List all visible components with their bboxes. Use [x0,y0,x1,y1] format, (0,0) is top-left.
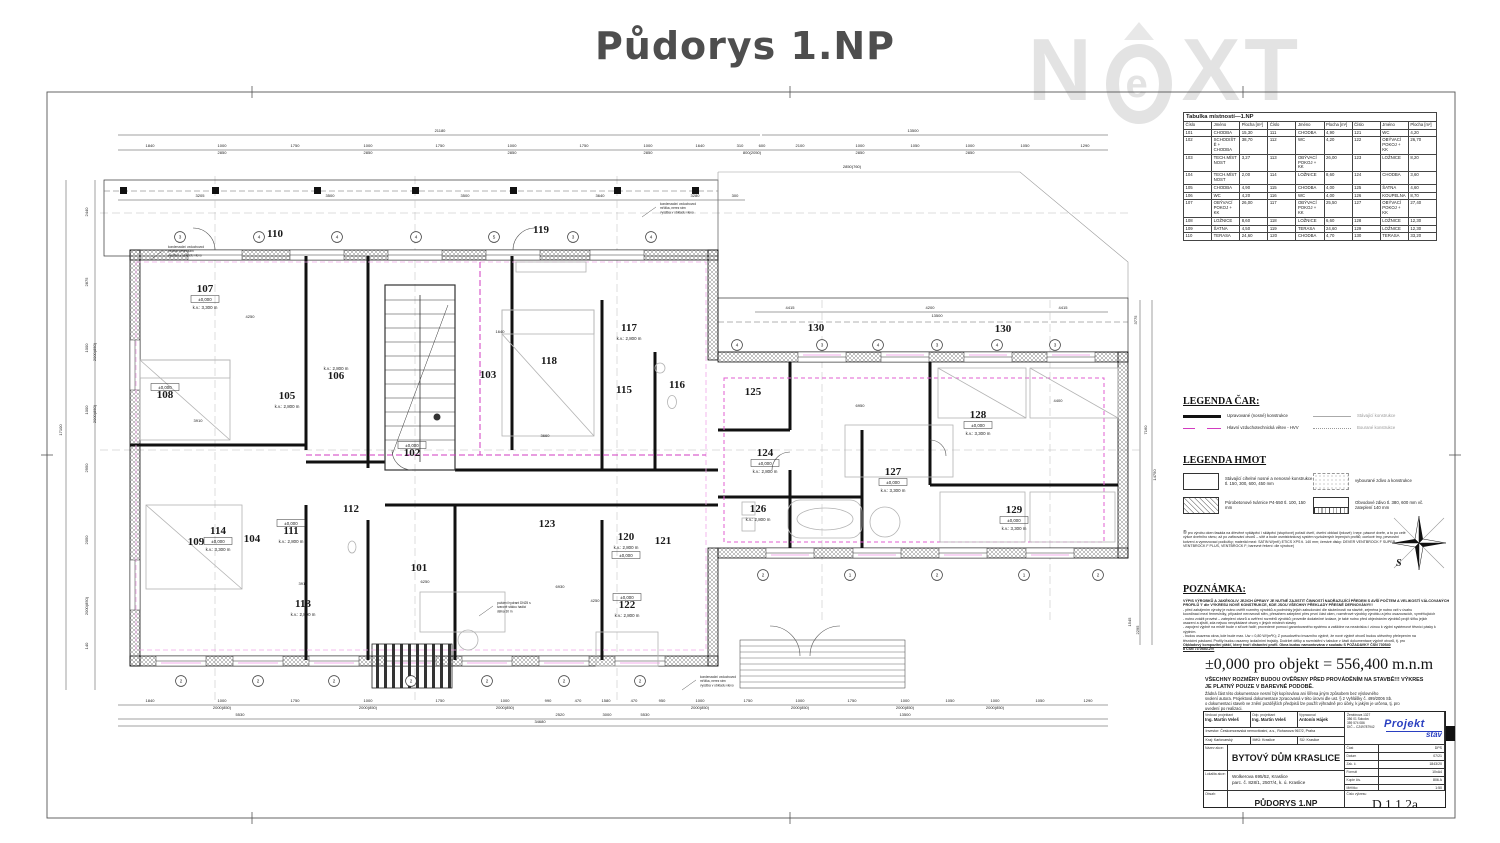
svg-text:4250: 4250 [246,314,256,319]
room-name: TERASA [1212,233,1240,241]
legend-mass-label: vybourané zdivo a konstrukce [1355,479,1412,484]
svg-text:vyústka v obkladu vlevo: vyústka v obkladu vlevo [700,683,734,687]
room-number: 103 [1184,154,1212,171]
svg-text:123: 123 [539,518,556,530]
svg-text:1290: 1290 [1081,143,1091,148]
wing-terrace [718,172,1128,352]
warning-line: JE PLATNÝ POUZE V BAREVNÉ PODOBĚ. [1205,684,1455,691]
col-header: Plocha [m²] [1240,121,1268,129]
room-area: 25,50 [1324,200,1352,217]
legend-mass-item: Pórobetonové tvárnice P4-550 tl. 100, 15… [1183,497,1313,514]
grid-bubble: 4 [992,340,1003,351]
room-area: 4,60 [1408,184,1436,192]
svg-text:vyústka v obkladu vlevo: vyústka v obkladu vlevo [660,210,694,214]
legend-mass-label: Stávající cihelné nosné a nenosné konstr… [1225,477,1313,487]
room-name: OBÝVACÍ POKOJ + KK [1296,154,1324,171]
room-area: 27,40 [1408,200,1436,217]
poznamka-line: - zapojení výplně na místě bude v síťové… [1183,625,1453,629]
company-logo: Projekt stav [1384,718,1442,739]
meta-value: 1843/20 [1379,761,1444,768]
room-label-130: 130 [808,322,825,334]
room-number: 108 [1184,217,1212,225]
dots-line-sample [1313,428,1351,429]
table-row: 109ŠATNA4,50119TERASA24,60129LOŽNICE12,3… [1184,225,1437,233]
svg-text:4: 4 [877,343,880,348]
hvv-lines [136,262,1104,650]
svg-text:470: 470 [575,698,582,703]
room-area: 8,20 [1408,154,1436,171]
room-name: CHODBA [1380,172,1408,185]
room-name: CHODBA [1212,184,1240,192]
room-number: 116 [1268,192,1296,200]
table-row: 108LOŽNICE8,60118LOŽNICE6,60128LOŽNICE12… [1184,217,1437,225]
svg-text:±0,000: ±0,000 [198,297,212,302]
project-label: Název akce: [1204,745,1228,771]
svg-text:4: 4 [736,343,739,348]
room-name: OBÝVACÍ POKOJ + KK [1380,137,1408,154]
room-label-123: 123 [539,518,556,530]
grid-bubble: 2 [932,570,943,581]
legend-line-label: Bourané konstrukce [1357,426,1395,431]
svg-text:111: 111 [283,525,298,537]
project-name: BYTOVÝ DŮM KRASLICE [1228,745,1345,771]
room-label-111: 111±0,000k.v.: 2,800 m [277,520,305,545]
svg-text:3500: 3500 [461,193,471,198]
meta-row: Zak. č.1843/20 [1345,761,1444,769]
room-number: 117 [1268,200,1296,217]
room-area: 4,90 [1240,184,1268,192]
svg-text:1000: 1000 [644,143,654,148]
svg-text:117: 117 [621,322,637,334]
svg-text:1640: 1640 [696,143,706,148]
room-name: CHODBA [1212,129,1240,137]
svg-text:1000: 1000 [856,143,866,148]
svg-text:±0,000: ±0,000 [284,521,298,526]
svg-text:2: 2 [486,679,489,684]
svg-text:4: 4 [258,235,261,240]
svg-text:101: 101 [411,562,428,574]
table-row: 104TECH.MÍSTNOST2,00114LOŽNICE8,60124CHO… [1184,172,1437,185]
meta-row: Kopie čís.806 A [1345,777,1444,785]
poznamka-line: koordinaci mezi řemeslníky, případné ner… [1183,612,1453,616]
svg-text:2000(850): 2000(850) [359,705,378,710]
svg-text:±0,000: ±0,000 [1007,518,1021,523]
room-area: 8,60 [1240,217,1268,225]
svg-text:14750: 14750 [1152,469,1157,481]
svg-text:±0,000: ±0,000 [158,385,172,390]
col-header: Jméno [1212,121,1240,129]
room-area: 4,70 [1324,233,1352,241]
svg-text:116: 116 [669,379,685,391]
svg-text:4: 4 [336,235,339,240]
grid-bubble: 3 [932,340,943,351]
svg-text:112: 112 [343,503,359,515]
room-area: 4,00 [1324,192,1352,200]
grid-bubble: 4 [411,232,422,243]
room-label-116: 116 [669,379,685,391]
svg-text:k.v.: 2,800 m: k.v.: 2,800 m [324,366,349,371]
person-name: Ing. Martin Veleš [1251,717,1297,723]
svg-text:4: 4 [415,235,418,240]
drawing-no-cell: Číslo výkresu D.1.1.2a [1345,791,1445,808]
grid-bubble: 1 [845,570,856,581]
svg-text:vyústka v obkladu vlevo: vyústka v obkladu vlevo [168,253,202,257]
room-label-118: 118 [541,355,557,367]
room-number: 107 [1184,200,1212,217]
svg-text:990: 990 [545,698,552,703]
room-number: 120 [1268,233,1296,241]
room-area: 4,20 [1240,192,1268,200]
svg-text:1000: 1000 [696,698,706,703]
svg-text:2875: 2875 [84,277,89,287]
grid-bubble: 4 [332,232,343,243]
svg-text:2: 2 [563,679,566,684]
room-name: LOŽNICE [1380,225,1408,233]
svg-text:1840: 1840 [146,698,156,703]
meta-value: 806 A [1379,777,1444,784]
svg-text:2950: 2950 [84,463,89,473]
meta-label: Kopie čís. [1345,777,1379,784]
grid-bubble: 3 [817,340,828,351]
room-labels: 107±0,000k.v.: 3,300 m108±0,000105k.v.: … [151,224,1028,618]
room-number: 122 [1352,137,1380,154]
company-address-line: DIČ – CZ49787942 [1347,726,1374,730]
poznamka-intro: VÝPIS VÝROBKŮ A JAKÉKOLIV JEJICH ÚPRAVY … [1183,599,1453,608]
svg-text:k.v.: 2,800 m: k.v.: 2,800 m [617,336,642,341]
room-area: 3,60 [1408,172,1436,185]
room-area: 26,70 [1408,137,1436,154]
room-name: TERASA [1296,225,1324,233]
svg-text:3775: 3775 [1133,315,1138,325]
svg-text:3: 3 [1054,343,1057,348]
room-label-112: 112 [343,503,359,515]
room-label-128: 128±0,000k.v.: 3,300 m [964,409,992,436]
grid-bubble: 2 [635,676,646,687]
disclaimer-block: Žádná část této dokumentace nesmí být ko… [1205,691,1449,711]
svg-text:k.v.: 3,300 m: k.v.: 3,300 m [966,431,991,436]
svg-text:k.v.: 3,300 m: k.v.: 3,300 m [881,488,906,493]
svg-text:2000(850): 2000(850) [213,705,232,710]
legend-masses-title: LEGENDA HMOT [1183,455,1439,466]
room-name: ŠATNA [1380,184,1408,192]
room-name: WC [1296,137,1324,154]
svg-text:2000(850): 2000(850) [496,705,515,710]
location-cell: Wolkerova 695/52, Kraslice parc. č. 828/… [1228,771,1345,791]
svg-text:600: 600 [759,143,766,148]
svg-text:2295: 2295 [1135,625,1140,635]
svg-text:1000: 1000 [84,343,89,353]
room-area: 26,00 [1240,200,1268,217]
room-number: 114 [1268,172,1296,185]
room-name: KOUPELNA [1380,192,1408,200]
svg-text:délka 30 m: délka 30 m [497,609,513,613]
grid-bubble: 3 [1050,340,1061,351]
col-header: Číslo [1268,121,1296,129]
room-name: TERASA [1380,233,1408,241]
svg-text:1580: 1580 [602,698,612,703]
logo-bottom-text: stav [1384,730,1442,739]
svg-text:4415: 4415 [786,305,796,310]
svg-text:1000: 1000 [218,698,228,703]
grid-bubble: 2 [482,676,493,687]
room-label-106: 106k.v.: 2,800 m [324,366,349,382]
legend-line-label: Upravované (nosné) konstrukce [1227,414,1288,419]
svg-text:1000: 1000 [901,698,911,703]
col-header: Jméno [1296,121,1324,129]
room-table: Tabulka místností—1.NPČísloJménoPlocha [… [1183,112,1437,241]
brick-band [1314,507,1349,514]
svg-text:125: 125 [745,386,762,398]
warning-block: VŠECHNY ROZMĚRY BUDOU OVĚŘENY PŘED PROVÁ… [1205,677,1455,690]
room-name: WC [1380,129,1408,137]
room-name: LOŽNICE [1380,217,1408,225]
svg-text:3640: 3640 [596,193,606,198]
title-block: Investor: Českomoravská nemovitostní, a.… [1203,711,1446,808]
svg-text:2850(760): 2850(760) [843,164,862,169]
svg-text:1000: 1000 [508,143,518,148]
legend-lines: LEGENDA ČAR: Upravované (nosné) konstruk… [1183,396,1439,431]
room-number: 126 [1352,192,1380,200]
room-number: 104 [1184,172,1212,185]
svg-text:6950: 6950 [856,403,866,408]
room-label-115: 115 [616,384,632,396]
room-name: LOŽNICE [1212,217,1240,225]
svg-text:122: 122 [619,599,636,611]
room-area: 6,60 [1324,217,1352,225]
svg-text:k.v.: 2,800 m: k.v.: 2,800 m [614,545,639,550]
legend-mass-item: Stávající cihelné nosné a nenosné konstr… [1183,473,1313,490]
staircase [385,285,455,470]
grid-bubble: 4 [873,340,884,351]
drawing-sheet: Půdorys 1.NP N e X T [0,0,1500,843]
room-number: 129 [1352,225,1380,233]
room-label-129: 129±0,000k.v.: 3,300 m [1000,504,1028,531]
room-name: TECH.MÍSTNOST [1212,154,1240,171]
svg-text:1290: 1290 [1084,698,1094,703]
grid-bubble: 1 [1019,570,1030,581]
svg-text:±0,000: ±0,000 [405,443,419,448]
svg-text:k.v.: 3,300 m: k.v.: 3,300 m [193,305,218,310]
svg-text:1000: 1000 [991,698,1001,703]
svg-text:k.v.: 2,800 m: k.v.: 2,800 m [279,539,304,544]
legend-masses: LEGENDA HMOT Stávající cihelné nosné a n… [1183,455,1439,514]
svg-text:3: 3 [179,235,182,240]
room-number: 127 [1352,200,1380,217]
svg-text:1000: 1000 [364,143,374,148]
svg-text:13500: 13500 [899,712,911,717]
svg-text:1050: 1050 [946,698,956,703]
svg-text:2100: 2100 [796,143,806,148]
diag-swatch [1183,497,1219,514]
room-number: 102 [1184,137,1212,154]
svg-text:1000: 1000 [84,405,89,415]
svg-text:5530: 5530 [641,712,651,717]
col-header: Plocha [m²] [1324,121,1352,129]
svg-text:k.v.: 2,800 m: k.v.: 2,800 m [291,612,316,617]
room-area: 8,70 [1408,192,1436,200]
legend-mass-item: Obvodové zdivo tl. 380, 600 mm vč. zatep… [1313,497,1439,514]
svg-text:2: 2 [333,679,336,684]
svg-text:470: 470 [631,698,638,703]
svg-text:1750: 1750 [291,698,301,703]
room-area: 4,50 [1240,225,1268,233]
region-cell: SÚ: Kraslice [1298,737,1345,745]
legend-line-label: Stávající konstrukce [1357,414,1395,419]
room-number: 101 [1184,129,1212,137]
room-number: 119 [1268,225,1296,233]
svg-text:±0,000: ±0,000 [971,423,985,428]
gray-line-sample [1313,416,1351,417]
grid-bubble: 3 [175,232,186,243]
svg-text:2850: 2850 [856,150,866,155]
svg-text:3205: 3205 [196,193,206,198]
room-area: 24,60 [1240,233,1268,241]
reg-note: ® pro výrobu oken fasáda na dřevěné vykl… [1183,531,1409,548]
room-number: 118 [1268,217,1296,225]
svg-text:1050: 1050 [1036,698,1046,703]
svg-text:110: 110 [267,228,283,240]
legend-line-item: Hlavní vzduchotechnická větev - HVV [1183,426,1313,431]
svg-text:140: 140 [84,642,89,649]
svg-text:800(2050): 800(2050) [743,150,762,155]
room-label-120: 120k.v.: 2,800 m±0,000 [612,531,640,559]
room-area: 3,27 [1240,154,1268,171]
col-header: Jméno [1380,121,1408,129]
svg-text:114: 114 [210,525,226,537]
svg-text:1750: 1750 [744,698,754,703]
svg-text:7160: 7160 [1143,425,1148,435]
room-name: CHODBA [1296,184,1324,192]
svg-text:2850: 2850 [644,150,654,155]
room-table-wrap: Tabulka místností—1.NPČísloJménoPlocha [… [1183,112,1437,241]
room-label-104: 104 [244,533,261,545]
svg-text:2: 2 [936,573,939,578]
svg-text:3280: 3280 [691,193,701,198]
svg-text:124: 124 [757,447,774,459]
room-name: CHODBA [1296,129,1324,137]
room-number: 105 [1184,184,1212,192]
svg-text:109: 109 [188,536,205,548]
svg-text:128: 128 [970,409,987,421]
svg-text:k.v.: 2,800 m: k.v.: 2,800 m [615,613,640,618]
leader-annotation: kondenzační vzduchovodmřížka, nerez rámv… [642,202,696,217]
svg-text:4400: 4400 [1054,398,1064,403]
legend-line-item: Bourané konstrukce [1313,426,1433,431]
meta-label: Datum [1345,753,1379,760]
svg-text:1050: 1050 [1021,143,1031,148]
room-label-125: 125 [745,386,762,398]
grid-bubble: 4 [646,232,657,243]
grid-bubble: 2 [758,570,769,581]
svg-text:127: 127 [885,466,902,478]
room-label-126: 126k.v.: 2,800 m [746,503,771,522]
svg-text:130: 130 [808,322,825,334]
grid-bubble: 2 [1093,570,1104,581]
svg-text:1750: 1750 [291,143,301,148]
svg-text:2: 2 [257,679,260,684]
room-name: OBÝVACÍ POKOJ + KK [1296,200,1324,217]
svg-text:2: 2 [180,679,183,684]
meta-value: 10xA4 [1379,769,1444,776]
svg-text:106: 106 [328,370,345,382]
room-name: WC [1296,192,1324,200]
room-label-109: 109 [188,536,205,548]
svg-text:1: 1 [1023,573,1026,578]
person-cell: VypracovalAntonín Hájek [1298,712,1345,728]
table-row: 107OBÝVACÍ POKOJ + KK26,00117OBÝVACÍ POK… [1184,200,1437,217]
grid-bubble: 4 [732,340,743,351]
room-label-114: 114±0,000k.v.: 3,300 m [204,525,232,552]
meta-table: ČástDPSDatum07/21Zak. č.1843/20Formát10x… [1345,745,1445,791]
svg-text:2850: 2850 [364,150,374,155]
table-row: 101CHODBA15,30111CHODBA4,90121WC4,20 [1184,129,1437,137]
room-area: 4,00 [1324,184,1352,192]
table-row: 106WC4,20116WC4,00126KOUPELNA8,70 [1184,192,1437,200]
room-number: 125 [1352,184,1380,192]
svg-text:2000(850): 2000(850) [84,596,89,615]
room-label-110: 110 [267,228,283,240]
room-label-103: 103 [480,369,497,381]
room-label-105: 105k.v.: 2,800 m [275,390,300,409]
svg-text:6930: 6930 [556,584,566,589]
grid-bubble: 2 [176,676,187,687]
room-area: 15,30 [1240,129,1268,137]
legend-lines-title: LEGENDA ČAR: [1183,396,1439,407]
svg-text:2850: 2850 [966,150,976,155]
room-area: 33,20 [1408,233,1436,241]
svg-text:±0,000: ±0,000 [620,595,634,600]
svg-text:17100: 17100 [58,424,63,436]
location-line2: parc. č. 828/1, 2507/4, k. ú. Kraslice [1228,779,1344,785]
room-area: 38,70 [1240,137,1268,154]
white-swatch [1183,473,1219,490]
table-header-row: ČísloJménoPlocha [m²]ČísloJménoPlocha [m… [1184,121,1437,129]
room-label-121: 121 [655,535,672,547]
room-name: WC [1212,192,1240,200]
svg-text:2: 2 [1097,573,1100,578]
meta-label: Zak. č. [1345,761,1379,768]
svg-text:120: 120 [618,531,635,543]
room-label-108: 108±0,000 [151,384,179,402]
room-number: 111 [1268,129,1296,137]
room-area: 26,00 [1324,154,1352,171]
room-name: CHODBA [1296,233,1324,241]
svg-text:129: 129 [1006,504,1023,516]
grid-bubbles: 2222222344453443434321212 [175,232,1104,687]
svg-text:3: 3 [572,235,575,240]
room-label-113: 113k.v.: 2,800 m [291,598,316,617]
svg-text:2000(850): 2000(850) [92,342,97,361]
meta-label: Formát [1345,769,1379,776]
svg-text:k.v.: 3,300 m: k.v.: 3,300 m [1002,526,1027,531]
room-area: 4,90 [1324,129,1352,137]
svg-text:1750: 1750 [436,143,446,148]
svg-text:3660: 3660 [541,433,551,438]
svg-text:1750: 1750 [436,698,446,703]
svg-text:1545: 1545 [1127,617,1132,627]
svg-text:k.v.: 3,300 m: k.v.: 3,300 m [206,547,231,552]
table-title: Tabulka místností—1.NP [1184,113,1437,122]
svg-text:1750: 1750 [848,698,858,703]
meta-row: ČástDPS [1345,745,1444,753]
svg-text:4415: 4415 [1059,305,1069,310]
table-title-row: Tabulka místností—1.NP [1184,113,1437,122]
person-cell: Vedoucí projektantIng. Martin Veleš [1204,712,1251,728]
svg-text:2000(850): 2000(850) [92,404,97,423]
grid-bubble: 2 [559,676,570,687]
svg-text:3910: 3910 [299,581,309,586]
grid-bubble: 5 [489,232,500,243]
